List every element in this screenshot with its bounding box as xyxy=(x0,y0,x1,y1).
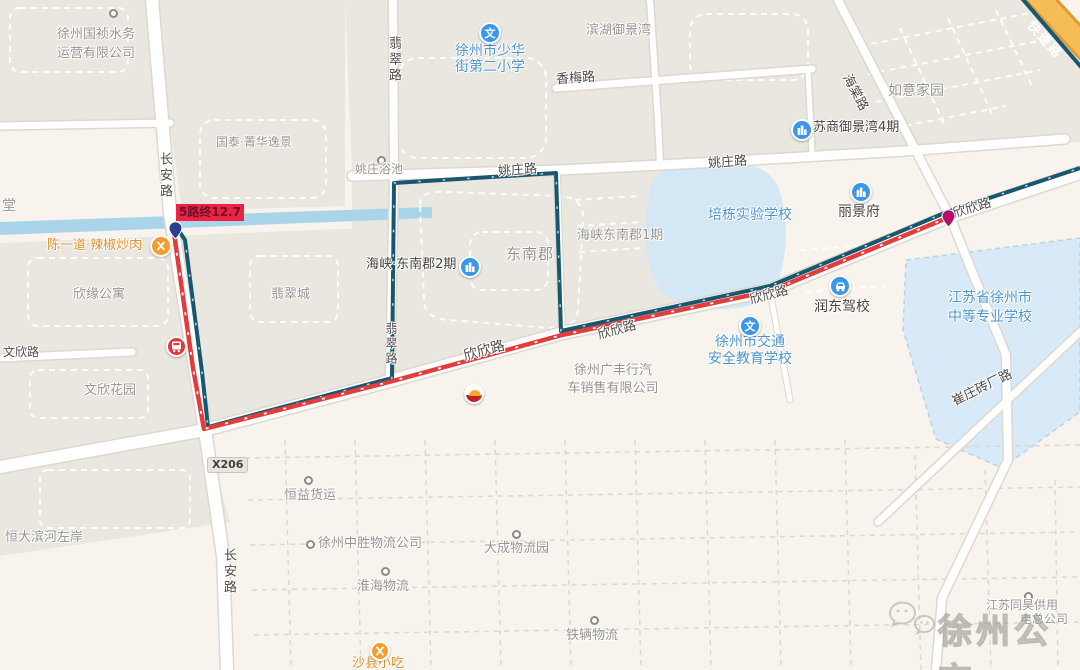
poi-label-line: 中等专业学校 xyxy=(938,308,1042,327)
school-glyph: 文 xyxy=(745,318,756,334)
poi-label-guangfeng: 徐州广丰行汽 车销售有限公司 xyxy=(565,362,661,398)
poi-dot[interactable] xyxy=(306,540,315,549)
poi-label-binhu: 滨湖御景湾 xyxy=(586,24,651,39)
building-icon[interactable] xyxy=(459,256,481,278)
road-label-yaozhuang-east: 姚庄路 xyxy=(707,150,747,172)
poi-label-tieliang: 铁辆物流 xyxy=(566,629,618,644)
poi-label-zhongsheng: 徐州中胜物流公司 xyxy=(318,537,422,552)
poi-label-dongnanjun: 东南郡 xyxy=(506,246,554,263)
poi-label-chenyidao: 陈一道·辣椒炒肉 xyxy=(47,239,142,254)
poi-dot[interactable] xyxy=(590,616,599,625)
road-label-xiangmei: 香梅路 xyxy=(555,66,595,88)
sunrise-brand-icon[interactable] xyxy=(464,384,484,404)
bus-station-icon[interactable] xyxy=(166,336,187,357)
route-start-marker[interactable] xyxy=(168,221,183,240)
school-icon[interactable]: 文 xyxy=(739,315,761,337)
car-glyph xyxy=(834,280,847,293)
poi-label-haixia-phase2: 海峡·东南郡2期 xyxy=(366,258,456,273)
bus-stop-label[interactable]: 5路终12.7 xyxy=(176,204,244,221)
poi-label-lijingfu: 丽景府 xyxy=(838,204,880,220)
poi-label-line: 运营有限公司 xyxy=(57,44,135,63)
poi-label-line: 街第二小学 xyxy=(447,59,533,75)
poi-label-wenxin-garden: 文欣花园 xyxy=(84,384,136,399)
poi-label-jiaotong-school: 徐州市交通 安全教育学校 xyxy=(704,334,796,368)
school-icon[interactable]: 文 xyxy=(479,22,501,44)
poi-label-guozhen-water: 徐州国祯水务 运营有限公司 xyxy=(57,25,135,63)
route-end-marker[interactable] xyxy=(941,209,956,228)
poi-label-line: 徐州广丰行汽 xyxy=(565,362,661,380)
sunrise-sun-half xyxy=(469,390,481,396)
map-canvas[interactable]: 长安路 长安路 翡翠路 翡翠路 姚庄路 姚庄路 香梅路 海棠路 欣欣路 欣欣路 … xyxy=(0,0,1080,670)
road-label-feicui-north: 翡翠路 xyxy=(384,36,403,84)
poi-label-rundong: 润东驾校 xyxy=(814,299,870,315)
poi-label-ruyi: 如意家园 xyxy=(888,83,944,99)
building-glyph xyxy=(855,186,867,198)
poi-label-tang: 堂 xyxy=(2,198,16,214)
building-icon[interactable] xyxy=(850,181,872,203)
poi-label-yaozhuang-bath: 姚庄浴池 xyxy=(355,163,403,177)
poi-dot[interactable] xyxy=(109,9,118,18)
poi-dot[interactable] xyxy=(304,476,313,485)
poi-label-peidong-school: 培栋实验学校 xyxy=(708,207,792,223)
poi-label-feicuicheng: 翡翠城 xyxy=(271,288,310,303)
fork-knife-glyph xyxy=(374,645,386,657)
poi-label-hengda: 恒大滨河左岸 xyxy=(5,531,83,546)
road-label-changan-north: 长安路 xyxy=(155,152,174,200)
building-glyph xyxy=(796,124,808,136)
poi-dot[interactable] xyxy=(512,530,521,539)
poi-label-xinyuan: 欣缘公寓 xyxy=(73,288,125,303)
poi-label-line: 徐州国祯水务 xyxy=(57,25,135,44)
restaurant-icon[interactable] xyxy=(370,641,390,661)
poi-label-guotai: 国泰·菁华逸景 xyxy=(216,136,292,150)
building-icon[interactable] xyxy=(791,119,813,141)
road-label-yaozhuang-west: 姚庄路 xyxy=(497,158,537,180)
road-label-wenxin: 文欣路 xyxy=(3,343,39,360)
poi-label-line: 江苏省徐州市 xyxy=(938,289,1042,308)
school-glyph: 文 xyxy=(485,25,496,41)
building-glyph xyxy=(464,261,476,273)
poi-label-line: 徐州市少华 xyxy=(447,43,533,59)
road-label-feicui-south: 翡翠路 xyxy=(383,322,400,367)
driving-school-car-icon[interactable] xyxy=(829,275,851,297)
poi-label-sushang: 苏商御景湾4期 xyxy=(813,121,899,136)
wechat-icon xyxy=(888,600,938,642)
poi-label-hengyi: 恒益货运 xyxy=(284,489,336,504)
poi-label-shaohua-school: 徐州市少华 街第二小学 xyxy=(447,43,533,75)
road-label-changan-south: 长安路 xyxy=(219,548,238,596)
map-base-layer xyxy=(0,0,1080,670)
poi-label-haixia-phase1: 海峡东南郡1期 xyxy=(577,229,663,244)
poi-label-dacheng: 大成物流园 xyxy=(484,542,549,557)
poi-label-line: 车销售有限公司 xyxy=(565,380,661,398)
poi-label-zhongdeng-school: 江苏省徐州市 中等专业学校 xyxy=(938,289,1042,327)
bus-glyph xyxy=(170,340,183,353)
road-badge-x206: X206 xyxy=(207,457,248,473)
fork-knife-glyph xyxy=(155,240,167,252)
poi-label-line: 安全教育学校 xyxy=(704,351,796,368)
watermark-brand: 徐州公交 xyxy=(938,604,1080,670)
poi-label-huaihai: 淮海物流 xyxy=(357,580,409,595)
poi-dot[interactable] xyxy=(381,567,390,576)
